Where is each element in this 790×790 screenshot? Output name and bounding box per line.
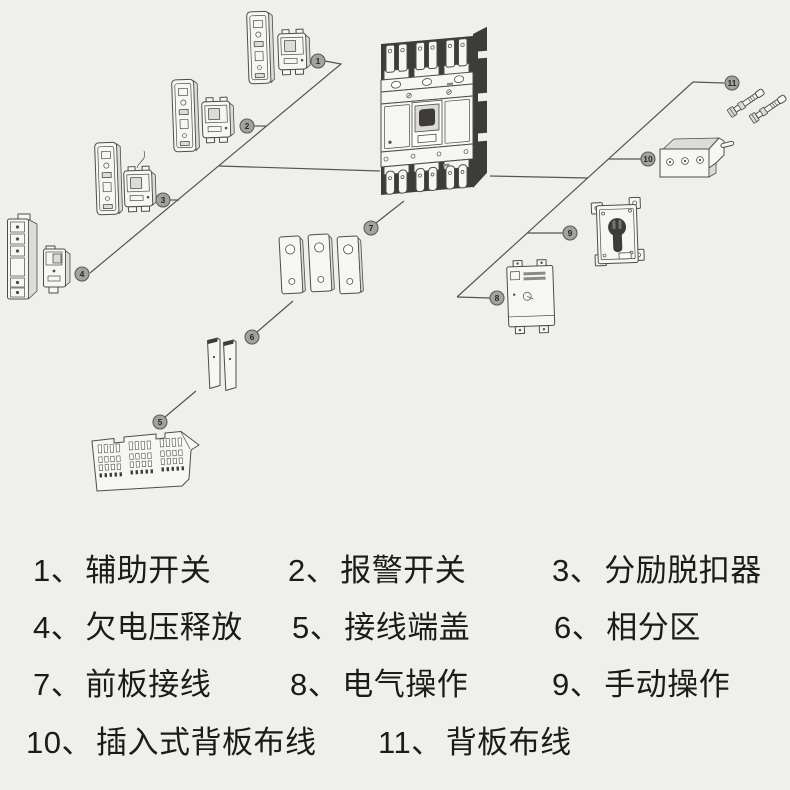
- callout-6: 6: [245, 330, 259, 344]
- legend-item-2: 2、报警开关: [288, 545, 466, 590]
- part-rotary-handle: [591, 197, 644, 266]
- legend-item-10: 10、插入式背板布线: [26, 717, 316, 762]
- svg-text:2: 2: [245, 121, 250, 131]
- callout-3: 3: [156, 193, 170, 207]
- part-phase-barriers: [208, 338, 237, 391]
- callout-1: 1: [311, 54, 325, 68]
- part-undervoltage-release: [8, 214, 71, 299]
- legend-label: 接线端盖: [344, 610, 470, 645]
- part-auxiliary-switch: [247, 11, 311, 84]
- legend-num: 1、: [33, 553, 82, 588]
- legend-label: 欠电压释放: [85, 610, 243, 645]
- legend-item-9: 9、手动操作: [552, 659, 730, 704]
- legend-item-3: 3、分励脱扣器: [552, 545, 762, 590]
- svg-text:3: 3: [161, 195, 166, 205]
- legend-item-8: 8、电气操作: [290, 659, 468, 704]
- svg-text:8: 8: [495, 293, 500, 303]
- legend-num: 9、: [552, 667, 601, 702]
- legend-label: 辅助开关: [85, 553, 211, 588]
- legend-item-7: 7、前板接线: [33, 659, 211, 704]
- callout-10: 10: [641, 152, 655, 166]
- legend-num: 6、: [554, 610, 603, 645]
- part-terminal-cover: [92, 432, 199, 492]
- callout-7: 7: [364, 221, 378, 235]
- svg-text:6: 6: [250, 332, 255, 342]
- legend-item-4: 4、欠电压释放: [33, 602, 243, 647]
- legend-item-6: 6、相分区: [554, 602, 701, 647]
- part-rear-panel-studs: [727, 87, 788, 123]
- part-alarm-switch: [172, 79, 235, 152]
- diagram-canvas: 1 2 3 4 5 6 7 8 9 10 11: [0, 0, 790, 535]
- legend-label: 手动操作: [604, 667, 730, 702]
- legend-item-5: 5、接线端盖: [292, 602, 470, 647]
- legend-label: 前板接线: [85, 667, 211, 702]
- legend-label: 插入式背板布线: [96, 725, 317, 760]
- legend-item-1: 1、辅助开关: [33, 545, 211, 590]
- legend-num: 10、: [26, 725, 93, 760]
- part-circuit-breaker: [381, 27, 487, 196]
- callout-9: 9: [563, 226, 577, 240]
- legend-num: 11、: [378, 725, 443, 760]
- svg-text:7: 7: [369, 223, 374, 233]
- shunt-trip-wire: [137, 151, 145, 168]
- callout-8: 8: [490, 291, 504, 305]
- part-plug-in-base: [660, 138, 734, 177]
- svg-text:9: 9: [568, 228, 573, 238]
- svg-text:5: 5: [158, 417, 163, 427]
- svg-text:4: 4: [80, 269, 85, 279]
- callout-11: 11: [725, 76, 739, 90]
- part-front-plate-connection: [279, 234, 363, 294]
- svg-text:11: 11: [728, 78, 737, 88]
- legend-label: 电气操作: [342, 667, 468, 702]
- legend-num: 4、: [33, 610, 82, 645]
- callout-4: 4: [75, 267, 89, 281]
- legend-num: 7、: [33, 667, 82, 702]
- legend-label: 分励脱扣器: [604, 553, 762, 588]
- legend-label: 背板布线: [446, 725, 572, 760]
- breaker-toggle-handle: [419, 108, 435, 126]
- legend-label: 报警开关: [340, 553, 466, 588]
- callout-5: 5: [153, 415, 167, 429]
- legend-num: 2、: [288, 553, 337, 588]
- callout-2: 2: [240, 119, 254, 133]
- part-shunt-trip: [95, 142, 157, 215]
- legend-num: 5、: [292, 610, 341, 645]
- legend-label: 相分区: [606, 610, 701, 645]
- exploded-accessories-diagram: 1 2 3 4 5 6 7 8 9 10 11 1、辅助开关 2、报警开关 3、…: [0, 0, 790, 790]
- legend-num: 8、: [290, 667, 339, 702]
- svg-text:10: 10: [643, 154, 653, 164]
- part-motor-operator: [506, 259, 555, 334]
- legend-num: 3、: [552, 553, 601, 588]
- legend-item-11: 11、背板布线: [378, 717, 572, 762]
- svg-text:1: 1: [316, 56, 321, 66]
